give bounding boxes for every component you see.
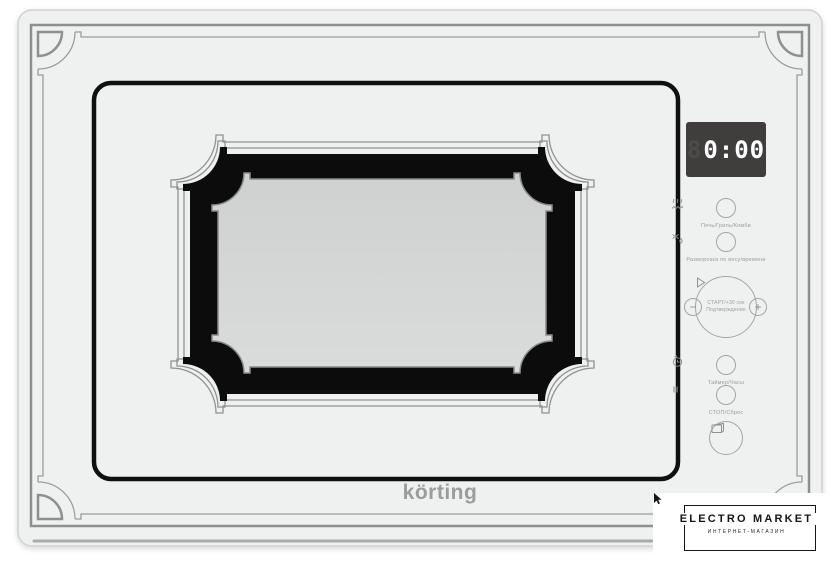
store-watermark: ELECTRO MARKET ИНТЕРНЕТ-МАГАЗИН xyxy=(653,493,840,561)
timer-clock-icon xyxy=(716,355,736,375)
minus-label: − xyxy=(689,301,696,313)
watermark-title: ELECTRO MARKET xyxy=(676,513,817,525)
display-ghost-digit: 8 xyxy=(687,136,701,164)
door-open-button xyxy=(709,421,743,455)
stop-button: СТОП/Сброс xyxy=(671,385,781,417)
microwave-product-photo: 8 0:00 Печь/Гриль/Комби Разморозка по ве… xyxy=(0,0,840,561)
window-glass-panel xyxy=(212,173,552,373)
door-open-icon xyxy=(710,422,726,435)
mode-button: Печь/Гриль/Комби xyxy=(671,198,781,230)
pause-icon xyxy=(716,385,736,405)
watermark-frame xyxy=(684,505,816,551)
display-time: 0:00 xyxy=(703,136,765,164)
cursor-arrow-icon xyxy=(653,493,662,505)
mode-button-label: Печь/Гриль/Комби xyxy=(671,222,781,230)
defrost-icon xyxy=(716,232,736,252)
plus-label: + xyxy=(754,301,761,313)
minus-button: − xyxy=(684,298,702,316)
microwave-grill-combi-icon xyxy=(716,198,736,218)
stop-button-label: СТОП/Сброс xyxy=(671,409,781,417)
plus-button: + xyxy=(749,298,767,316)
start-label-line2: Подтверждение xyxy=(706,307,746,315)
start-confirm-button: СТАРТ/+30 сек Подтверждение xyxy=(695,276,757,338)
defrost-button: Разморозка по весу/времени xyxy=(671,232,781,264)
play-icon xyxy=(696,277,706,288)
digital-display: 8 0:00 xyxy=(686,122,766,177)
watermark-subtitle: ИНТЕРНЕТ-МАГАЗИН xyxy=(708,529,786,535)
defrost-button-label: Разморозка по весу/времени xyxy=(671,256,781,264)
brand-logo: körting xyxy=(330,481,550,505)
start-label-line1: СТАРТ/+30 сек xyxy=(707,300,744,308)
timer-button: Таймер/Часы xyxy=(671,355,781,387)
